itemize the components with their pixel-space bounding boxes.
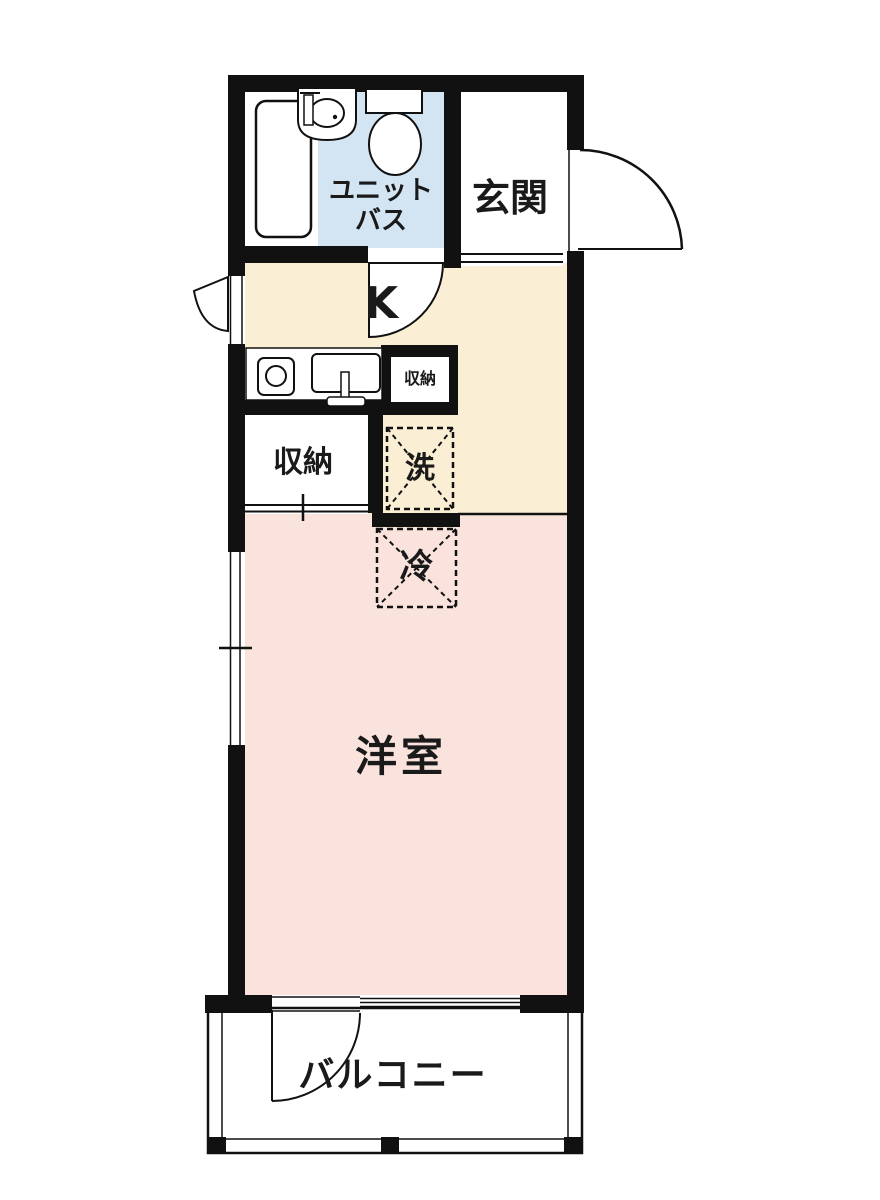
floor-plan: ユニット バス 玄関 K 収納 収納 洗 冷 洋室 バルコニー [0, 0, 880, 1200]
balcony-window [360, 999, 520, 1007]
room-window [219, 552, 252, 745]
unit-bath-label-line2: バス [355, 206, 407, 236]
unit-bath-label-line1: ユニット [329, 176, 433, 206]
entrance-label: 玄関 [455, 178, 565, 220]
kitchen-label: K [356, 280, 406, 328]
balcony-label: バルコニー [243, 1056, 543, 1096]
washer-label: 洗 [387, 452, 453, 485]
entrance-threshold-lines [461, 254, 563, 262]
unit-bath-label: ユニット バス [320, 176, 442, 236]
western-room-label: 洋室 [296, 734, 506, 780]
fridge-label: 冷 [377, 549, 456, 586]
window-wedge-icon [194, 276, 242, 344]
toilet-icon [366, 89, 422, 175]
storage-sliding-door [230, 494, 372, 521]
washbasin-icon [298, 88, 356, 140]
entrance-door-swing-icon [569, 150, 682, 251]
kitchen-storage-label: 収納 [391, 370, 449, 388]
kitchen-counter [246, 348, 382, 406]
storage-label: 収納 [240, 446, 366, 479]
